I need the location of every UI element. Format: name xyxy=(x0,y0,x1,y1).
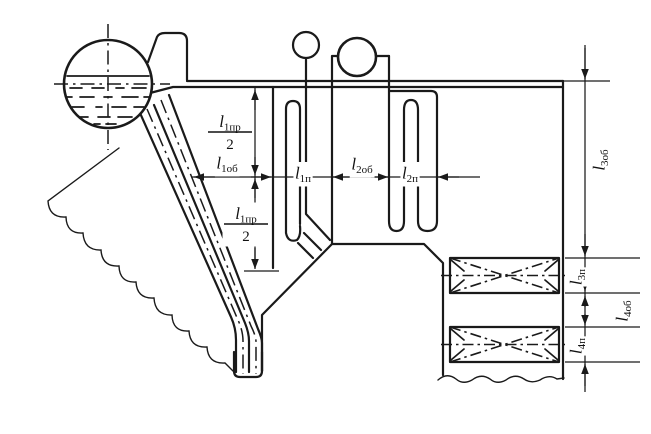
tube-bundle-1 xyxy=(441,258,575,293)
standpipe-1-tube xyxy=(306,58,330,240)
ceiling-tubes xyxy=(150,81,563,93)
dim-l4ob: l4об xyxy=(611,298,636,323)
dim-l1ob: l1об xyxy=(215,152,240,177)
break-line-bottom xyxy=(438,376,564,383)
dim-l1pr-over-2-upper: l1пр2 xyxy=(207,111,254,155)
dim-l3p: l3п xyxy=(565,267,590,286)
dim-l4p: l4п xyxy=(565,336,590,355)
panel2-serpentine-tube xyxy=(389,56,437,231)
svg-text:2: 2 xyxy=(226,137,234,153)
furnace-outline xyxy=(262,244,443,375)
dim-l2p: l2п xyxy=(400,162,419,187)
dimension-labels: l1пр2l1обl1пр2l1пl2обl2пl3обl3пl4обl4п xyxy=(207,111,636,356)
ceiling-line-lower xyxy=(150,87,563,93)
upper-header-box xyxy=(332,56,389,244)
dim-l1pr-over-2-lower: l1пр2 xyxy=(223,203,270,247)
svg-text:2: 2 xyxy=(242,229,250,245)
boiler-circulation-diagram: l1пр2l1обl1пр2l1пl2обl2пl3обl3пl4обl4п xyxy=(0,0,651,434)
standpipe-circle-large xyxy=(338,38,376,76)
dim-l3ob: l3об xyxy=(588,147,613,172)
dim-l1p: l1п xyxy=(293,162,312,187)
tube-bundle-2 xyxy=(441,327,575,362)
panel1-bend-stubs xyxy=(298,233,321,258)
riser-panel-2 xyxy=(389,56,437,231)
steam-drum xyxy=(54,24,187,150)
standpipe-circle-small xyxy=(293,32,319,58)
dim-l2ob: l2об xyxy=(350,153,375,178)
drum-outlet-hump xyxy=(148,33,187,80)
figure-canvas: l1пр2l1обl1пр2l1пl2обl2пl3обl3пl4обl4п xyxy=(0,0,651,434)
